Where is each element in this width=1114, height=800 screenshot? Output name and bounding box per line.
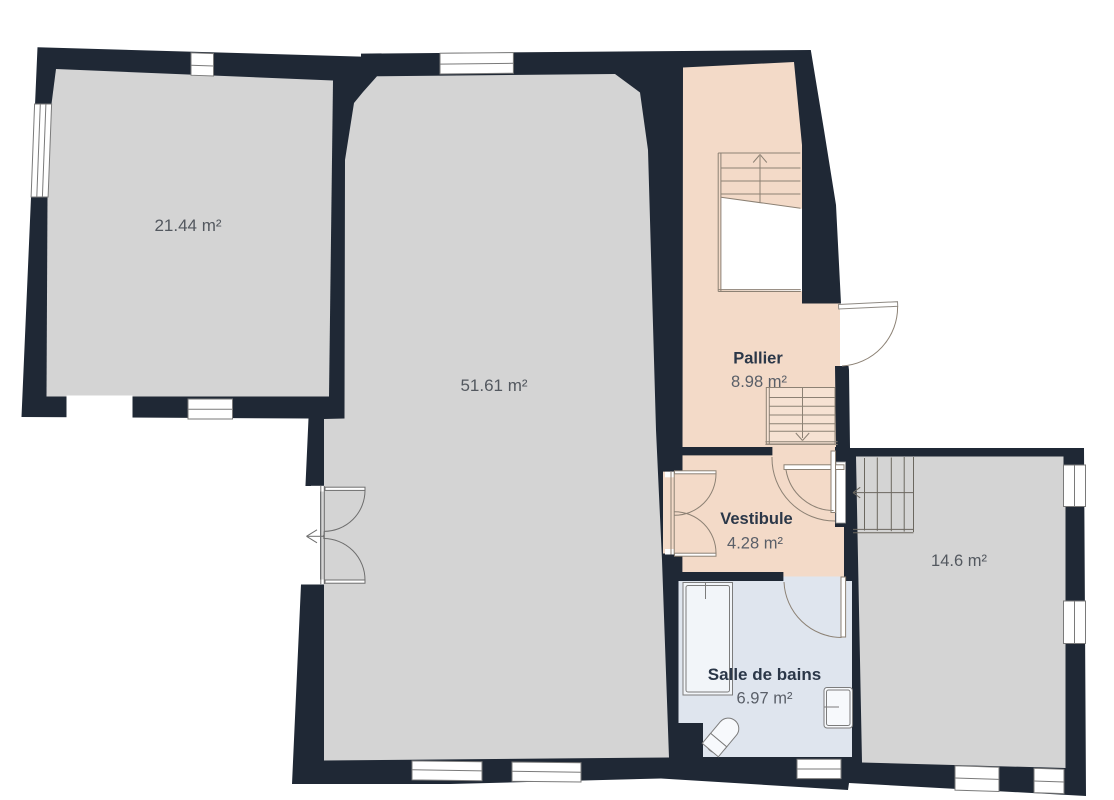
svg-text:14.6 m²: 14.6 m² [931, 552, 987, 570]
svg-text:Salle de bains: Salle de bains [708, 665, 821, 684]
svg-text:Pallier: Pallier [733, 350, 783, 368]
svg-text:21.44 m²: 21.44 m² [154, 216, 221, 235]
svg-text:8.98 m²: 8.98 m² [731, 373, 787, 391]
svg-text:Vestibule: Vestibule [720, 510, 792, 528]
svg-text:6.97 m²: 6.97 m² [737, 690, 793, 708]
svg-text:51.61 m²: 51.61 m² [460, 376, 527, 395]
svg-text:4.28 m²: 4.28 m² [727, 535, 783, 553]
